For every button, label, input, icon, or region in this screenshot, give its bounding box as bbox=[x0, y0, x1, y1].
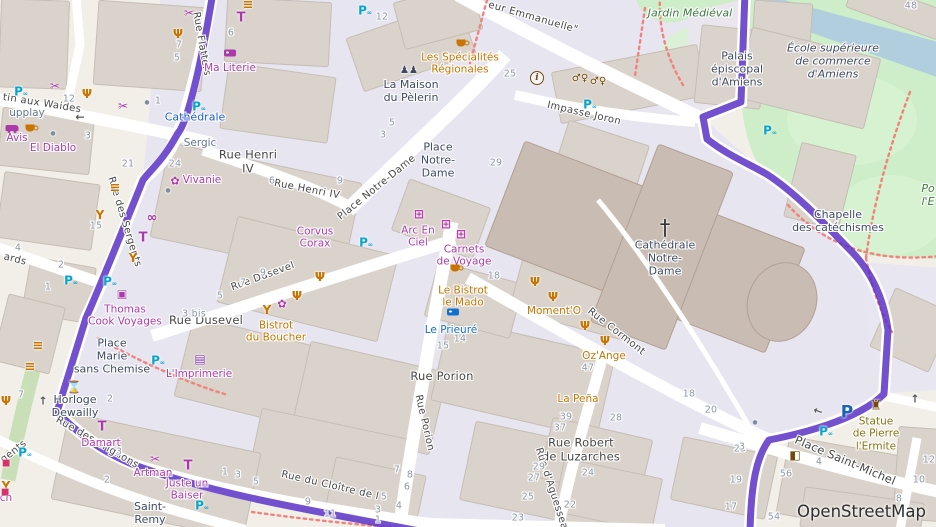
bicycle-parking-icon: P∞ bbox=[583, 98, 597, 111]
bar-icon: Y bbox=[129, 252, 138, 264]
poi-label-avis: Avis bbox=[6, 132, 27, 144]
map-labels-layer: tin aux WaidesRue des SergentsRue Flatte… bbox=[0, 0, 936, 527]
place-label-ecole-superieure-de-commerce-d-amiens: École supérieure de commerce d'Amiens bbox=[787, 43, 879, 82]
poi-dot-icon: ● bbox=[50, 131, 55, 137]
poi-label-oz-ange: Oz'Ange bbox=[582, 350, 626, 362]
house-number: 15 bbox=[437, 340, 450, 351]
poi-dot-icon: ● bbox=[144, 100, 149, 106]
florist-icon: ✿ bbox=[277, 299, 286, 310]
house-number: 11 bbox=[324, 508, 337, 519]
fast-food-icon: ≡ bbox=[110, 182, 121, 195]
house-number: 2 bbox=[58, 259, 64, 270]
house-number: 25 bbox=[504, 68, 517, 79]
house-number: 8 bbox=[407, 469, 413, 480]
gift-shop-icon: ⊞ bbox=[456, 228, 466, 240]
bicycle-parking-icon: P∞ bbox=[64, 274, 78, 287]
place-label-chapelle-des-catechismes: Chapelle des catéchismes bbox=[792, 209, 884, 235]
bar-icon: Y bbox=[96, 209, 105, 221]
bicycle-parking-icon: P∞ bbox=[151, 354, 165, 367]
restaurant-icon: Ψ bbox=[292, 290, 302, 302]
house-number: 39 bbox=[560, 411, 573, 422]
house-number: 1 bbox=[155, 95, 161, 106]
house-number: 7 bbox=[240, 277, 246, 288]
restaurant-icon: Ψ bbox=[173, 28, 183, 40]
clothes-shop-icon: T bbox=[139, 232, 148, 245]
poi-label-thomas-cook-voyages: Thomas Cook Voyages bbox=[88, 304, 162, 329]
house-number: 7 bbox=[394, 464, 400, 475]
house-number: 5 bbox=[381, 491, 387, 502]
oneway-arrow-icon: ← bbox=[812, 404, 824, 417]
bicycle-parking-icon: P∞ bbox=[18, 446, 32, 459]
poi-label-damart: Damart bbox=[81, 437, 121, 449]
poi-marker-icon: ■ bbox=[1, 489, 10, 498]
toilets-icon: ♂♀ bbox=[590, 77, 606, 87]
poi-label-le-prieure: Le Prieuré bbox=[425, 324, 478, 336]
fast-food-icon: ≡ bbox=[25, 361, 36, 374]
house-number: 3 bbox=[116, 446, 122, 457]
house-number: 4 bbox=[396, 500, 402, 511]
park-label-po-l-e: Po l'E bbox=[921, 183, 934, 209]
poi-label-el-diablo: El Diablo bbox=[30, 142, 76, 154]
house-number: 25 bbox=[522, 491, 535, 502]
house-number: 3 bbox=[739, 441, 745, 452]
poi-label-carnets-de-voyage: Carnets de Voyage bbox=[436, 244, 491, 269]
house-number: 4 bbox=[816, 456, 822, 467]
house-number: 27 bbox=[528, 472, 541, 483]
car-rental-icon bbox=[6, 125, 19, 131]
hairdresser-icon: ✂ bbox=[184, 7, 194, 19]
osm-attribution[interactable]: OpenStreetMap bbox=[797, 502, 926, 521]
bicycle-parking-icon: P∞ bbox=[195, 499, 209, 512]
house-number: 23 bbox=[512, 512, 525, 523]
gate-icon: ◧ bbox=[789, 449, 800, 461]
house-number: 14 bbox=[454, 333, 467, 344]
house-number: 12 bbox=[63, 93, 76, 104]
house-number: 29 bbox=[490, 157, 503, 168]
house-number: 3 bbox=[380, 129, 386, 140]
poi-label-corvus-corax: Corvus Corax bbox=[297, 226, 333, 251]
parking-icon: P bbox=[841, 405, 853, 422]
place-label-cathedrale-notre-dame: Cathédrale Notre- Dame bbox=[635, 240, 696, 279]
house-number: 5 bbox=[389, 117, 395, 128]
house-number: 1 bbox=[222, 466, 228, 477]
street-label-place-notre-dame: Place Notre-Dame bbox=[336, 153, 419, 223]
house-number: 20 bbox=[705, 404, 718, 415]
bicycle-parking-icon: P∞ bbox=[763, 124, 777, 137]
house-number: 12 bbox=[923, 454, 936, 465]
restaurant-icon: Ψ bbox=[530, 276, 540, 288]
house-number: 6 bbox=[269, 175, 275, 186]
street-label-rue-du-cloitre-de-l: Rue du Cloître de l bbox=[280, 469, 380, 503]
house-number: 47 bbox=[582, 362, 595, 373]
street-label-rue-henri-iv: Rue Henri IV bbox=[219, 148, 277, 175]
florist-icon: ✿ bbox=[170, 176, 179, 187]
restaurant-icon: Ψ bbox=[315, 271, 325, 283]
house-number: 9 bbox=[337, 175, 343, 186]
house-number: 29 bbox=[533, 461, 546, 472]
house-number: 3 bbox=[235, 469, 241, 480]
bed-icon bbox=[447, 309, 459, 316]
house-number: 24 bbox=[169, 158, 182, 169]
place-label-palais-episcopal-d-amiens: Palais épiscopal d'Amiens bbox=[711, 51, 763, 90]
place-label-place-notre-dame: Place Notre- Dame bbox=[421, 142, 455, 181]
poi-dot-icon: ● bbox=[752, 420, 757, 426]
poi-label-bistrot-du-boucher: Bistrot du Boucher bbox=[246, 320, 306, 345]
poi-label-cathedrale: Cathédrale bbox=[165, 112, 226, 125]
clock-monument-icon: ⌛ bbox=[67, 381, 82, 393]
house-number: 5 bbox=[217, 290, 223, 301]
restaurant-icon: Ψ bbox=[82, 88, 92, 100]
house-number: 5 bbox=[253, 476, 259, 487]
house-number: 5 bbox=[174, 52, 180, 63]
poi-label-la-pena: La Peña bbox=[557, 393, 598, 405]
street-label-rue-porion: Rue Porion bbox=[412, 394, 436, 452]
house-number: 6 bbox=[228, 27, 234, 38]
information-icon: i bbox=[530, 71, 544, 85]
house-number: 1 bbox=[45, 281, 51, 292]
house-number: 7 bbox=[176, 39, 182, 50]
cafe-icon bbox=[26, 125, 35, 132]
house-number: 18 bbox=[488, 270, 501, 281]
house-number: 18 bbox=[683, 388, 696, 399]
restaurant-icon: Ψ bbox=[1, 395, 11, 407]
street-label-rue-porion: Rue Porion bbox=[410, 370, 473, 384]
house-number: 15 bbox=[90, 220, 103, 231]
street-label-ards: ards bbox=[2, 251, 27, 268]
poi-label-sergic: Sergic bbox=[184, 137, 217, 149]
house-number: 54 bbox=[768, 511, 781, 522]
toilets-icon: ♂♀ bbox=[572, 74, 588, 84]
poi-label-ma-literie: Ma Literie bbox=[204, 62, 256, 74]
bicycle-parking-icon: P∞ bbox=[192, 100, 206, 113]
cafe-icon bbox=[451, 265, 460, 272]
house-number: 24 bbox=[582, 467, 595, 478]
bookshop-icon: ▤ bbox=[194, 353, 205, 365]
bicycle-parking-icon: P∞ bbox=[358, 4, 372, 17]
house-number: 2 bbox=[107, 393, 113, 404]
restaurant-icon: Ψ bbox=[600, 335, 610, 347]
street-label-rue-robert-de-luzarches: Rue Robert de Luzarches bbox=[542, 436, 620, 463]
house-number: 9 bbox=[305, 496, 311, 507]
house-number: 3 bbox=[85, 130, 91, 141]
statue-icon: ♜ bbox=[870, 400, 882, 413]
oneway-arrow-icon: ↑ bbox=[38, 396, 47, 407]
poi-label-les-specialites-regionales: Les Spécialités Régionales bbox=[421, 52, 499, 77]
bicycle-parking-icon: P∞ bbox=[14, 85, 28, 98]
cathedral-cross-icon: † bbox=[660, 218, 671, 239]
travel-agency-icon: ▣ bbox=[117, 289, 127, 300]
clothes-shop-icon: T bbox=[184, 460, 193, 473]
oneway-arrow-icon: ← bbox=[75, 112, 84, 123]
house-number: 17 bbox=[725, 501, 738, 512]
poi-label-moment-o: Moment'O bbox=[527, 305, 581, 317]
fast-food-icon: ≡ bbox=[33, 340, 44, 353]
house-number: 4 bbox=[15, 242, 21, 253]
hairdresser-icon: ✂ bbox=[150, 453, 160, 465]
restaurant-icon: Ψ bbox=[548, 291, 558, 303]
poi-marker-icon: ■ bbox=[2, 460, 11, 469]
street-label-rue-henri-iv: Rue Henri IV bbox=[273, 178, 341, 202]
house-number: 28 bbox=[610, 412, 623, 423]
cafe-icon bbox=[457, 40, 466, 47]
house-number: 9 bbox=[260, 267, 266, 278]
bar-icon: Y bbox=[263, 304, 272, 316]
clothes-shop-icon: T bbox=[237, 12, 246, 25]
hairdresser-icon: ✂ bbox=[118, 100, 128, 112]
house-number: 56 bbox=[780, 468, 793, 479]
house-number: 48 bbox=[905, 0, 918, 11]
bicycle-parking-icon: P∞ bbox=[819, 425, 833, 438]
optician-icon: ∞ bbox=[147, 212, 158, 225]
house-number: 12 bbox=[376, 11, 389, 22]
house-number: 10 bbox=[913, 474, 926, 485]
hairdresser-icon: ✂ bbox=[50, 80, 60, 92]
gift-shop-icon: ⊞ bbox=[441, 218, 451, 230]
place-label-saint-remy: Saint- Remy bbox=[134, 501, 166, 527]
house-number: 37 bbox=[554, 422, 567, 433]
oneway-arrow-icon: ↑ bbox=[910, 394, 919, 405]
bed-icon bbox=[224, 50, 236, 57]
house-number: 22 bbox=[564, 499, 577, 510]
house-number: 19 bbox=[730, 474, 743, 485]
house-number: 6 bbox=[404, 481, 410, 492]
house-number: 2 bbox=[104, 474, 110, 485]
house-number: 7 bbox=[18, 389, 24, 400]
house-number: 3 bis bbox=[182, 308, 206, 319]
guest-house-icon: ♟♟ bbox=[400, 66, 418, 76]
poi-label-vivanie: Vivanie bbox=[183, 174, 222, 186]
poi-label-statue-de-pierre-l-ermite: Statue de Pierre l'Ermite bbox=[853, 415, 900, 452]
bicycle-parking-icon: P∞ bbox=[359, 236, 373, 249]
place-label-horloge-dewailly: Horloge Dewailly bbox=[52, 394, 99, 420]
poi-label-upplay: upplay bbox=[9, 107, 45, 119]
house-number: 1 bbox=[375, 514, 381, 525]
poi-label-le-bistrot-le-mado: Le Bistrot le Mado bbox=[438, 285, 488, 310]
place-label-place-marie-sans-chemise: Place Marie sans Chemise bbox=[74, 338, 150, 377]
bicycle-parking-icon: P∞ bbox=[103, 275, 117, 288]
house-number: 21 bbox=[122, 158, 135, 169]
poi-label-l-imprimerie: L'Imprimerie bbox=[166, 368, 232, 380]
street-label-eur-emmanuelle: eur Emmanuelle" bbox=[487, 0, 580, 36]
gift-shop-icon: ⊞ bbox=[414, 208, 424, 220]
map-canvas[interactable]: tin aux WaidesRue des SergentsRue Flatte… bbox=[0, 0, 936, 527]
park-label-jardin-medieval: Jardin Médiéval bbox=[648, 8, 732, 21]
poi-dot-icon: ● bbox=[165, 188, 170, 194]
place-label-la-maison-du-pelerin: La Maison du Pèlerin bbox=[383, 79, 438, 105]
clothes-shop-icon: T bbox=[98, 421, 107, 434]
restaurant-icon: Ψ bbox=[580, 320, 590, 332]
poi-label-arc-en-ciel: Arc En Ciel bbox=[401, 225, 435, 250]
